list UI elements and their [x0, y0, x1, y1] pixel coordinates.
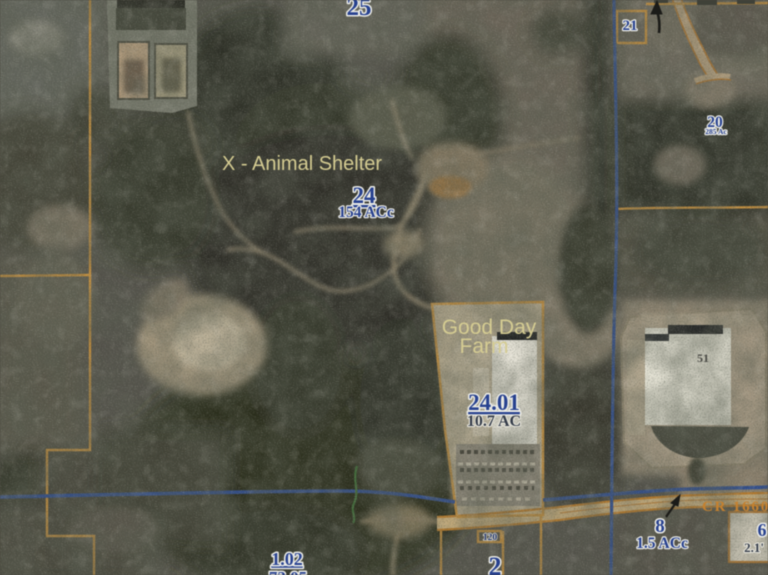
svg-text:1.5 ACc: 1.5 ACc: [636, 535, 688, 552]
svg-text:285 Ac: 285 Ac: [705, 127, 727, 136]
svg-text:120: 120: [483, 533, 498, 543]
svg-text:2.1': 2.1': [744, 540, 764, 555]
svg-text:51: 51: [697, 351, 709, 365]
svg-text:24.01: 24.01: [468, 390, 520, 415]
svg-text:1.02: 1.02: [271, 549, 303, 569]
svg-text:154 ACc: 154 ACc: [338, 204, 394, 221]
svg-text:2: 2: [489, 552, 502, 575]
svg-text:8: 8: [655, 516, 665, 537]
svg-text:21: 21: [623, 18, 638, 34]
svg-text:25: 25: [347, 0, 372, 21]
svg-text:X - Animal Shelter: X - Animal Shelter: [222, 153, 382, 175]
svg-text:73.05: 73.05: [269, 568, 307, 575]
svg-text:10.7 AC: 10.7 AC: [467, 413, 521, 430]
svg-text:CR 1660: CR 1660: [702, 499, 768, 515]
svg-text:Farm: Farm: [460, 335, 509, 358]
svg-text:6: 6: [758, 520, 767, 540]
